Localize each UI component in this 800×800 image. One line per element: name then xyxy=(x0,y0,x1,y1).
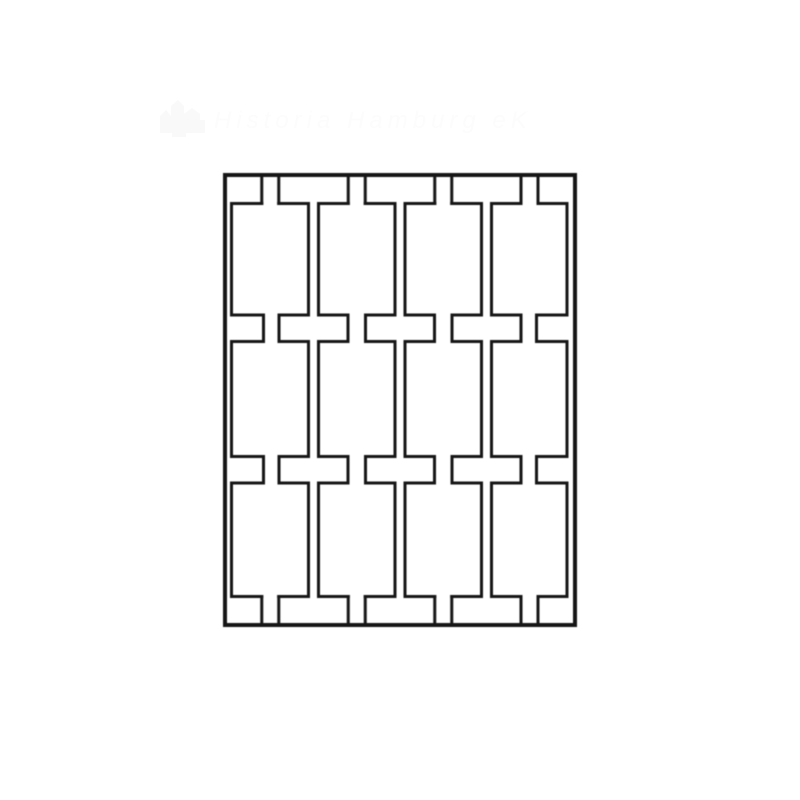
svg-text:Historia Hamburg eK: Historia Hamburg eK xyxy=(214,107,532,134)
